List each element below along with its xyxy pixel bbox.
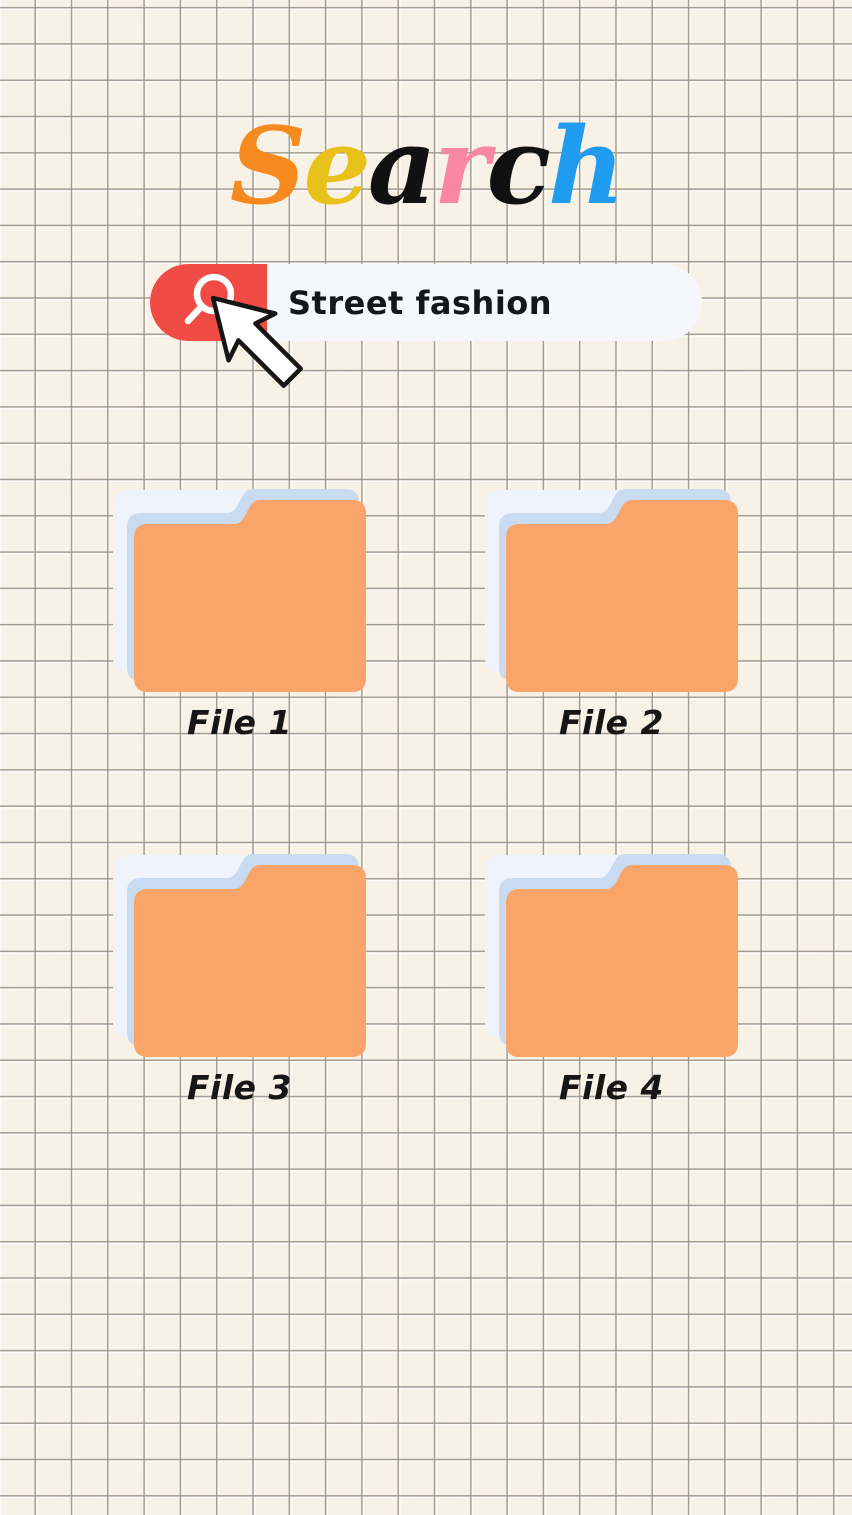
folder-file-4[interactable]: File 4	[485, 854, 738, 1107]
title-letter: a	[368, 103, 434, 228]
title-letter: c	[486, 103, 548, 228]
search-input[interactable]: Street fashion	[288, 264, 552, 341]
title-letter: e	[303, 103, 367, 228]
search-button[interactable]	[150, 264, 267, 341]
folder-label: File 4	[485, 1068, 738, 1107]
folder-icon	[485, 489, 738, 692]
title-letter: h	[548, 103, 622, 228]
search-bar[interactable]: Street fashion	[150, 264, 702, 341]
folder-label: File 1	[113, 703, 366, 742]
title-letter: r	[434, 103, 487, 228]
folder-file-3[interactable]: File 3	[113, 854, 366, 1107]
search-icon	[150, 264, 267, 341]
folder-icon	[113, 489, 366, 692]
grid-background: Search Street fashion File 1	[0, 0, 852, 1515]
folder-label: File 2	[485, 703, 738, 742]
folder-file-2[interactable]: File 2	[485, 489, 738, 742]
page-title: Search	[0, 110, 852, 221]
folder-icon	[113, 854, 366, 1057]
folder-label: File 3	[113, 1068, 366, 1107]
folder-icon	[485, 854, 738, 1057]
title-letter: S	[230, 103, 304, 228]
folder-file-1[interactable]: File 1	[113, 489, 366, 742]
